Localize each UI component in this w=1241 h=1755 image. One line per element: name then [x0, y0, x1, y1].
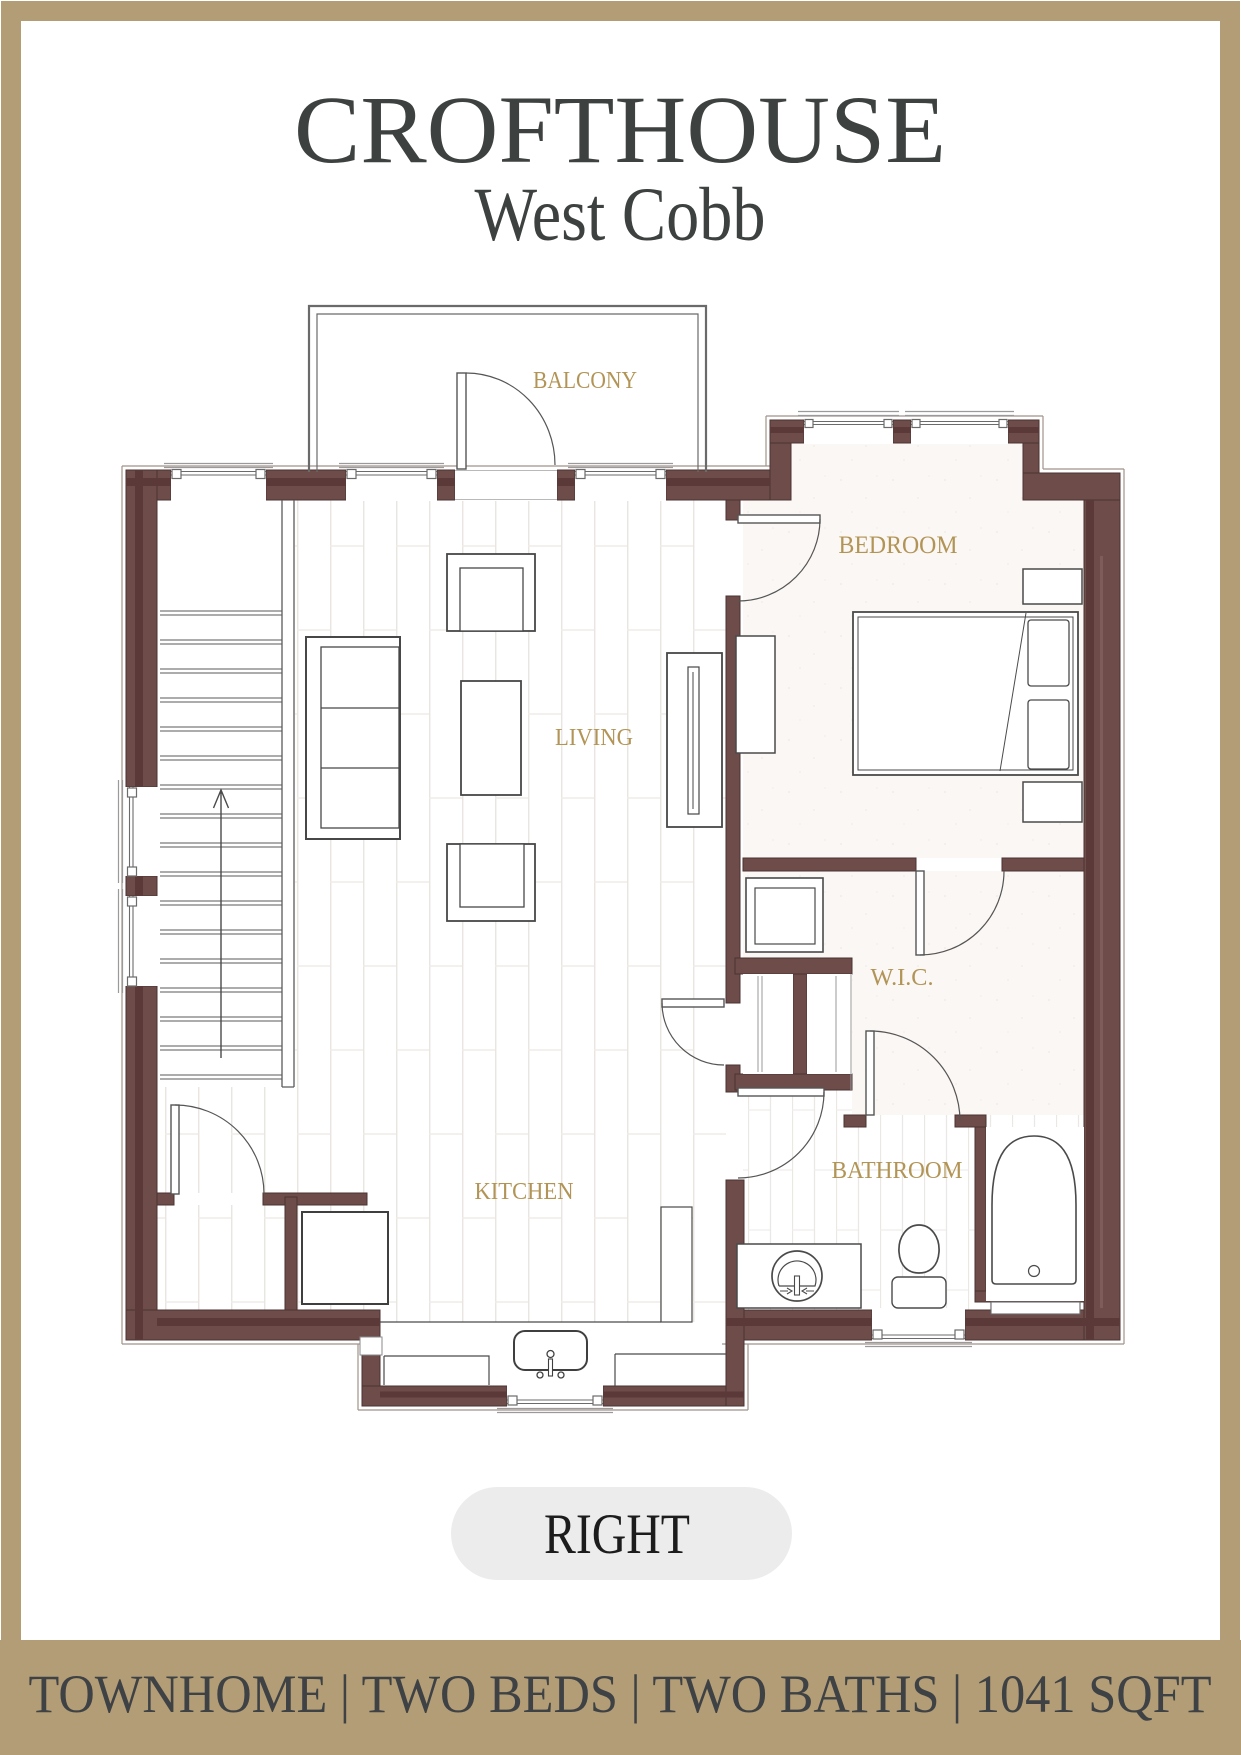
svg-text:LIVING: LIVING: [555, 725, 633, 751]
svg-text:W.I.C.: W.I.C.: [871, 965, 934, 991]
svg-text:CROFTHOUSE: CROFTHOUSE: [294, 76, 946, 183]
svg-text:KITCHEN: KITCHEN: [475, 1179, 574, 1205]
svg-text:BALCONY: BALCONY: [533, 368, 637, 394]
svg-text:BATHROOM: BATHROOM: [832, 1158, 963, 1184]
svg-text:RIGHT: RIGHT: [544, 1503, 690, 1566]
svg-text:BEDROOM: BEDROOM: [839, 532, 958, 559]
svg-text:TOWNHOME | TWO BEDS | TWO BATH: TOWNHOME | TWO BEDS | TWO BATHS | 1041 S…: [29, 1664, 1212, 1724]
svg-text:West Cobb: West Cobb: [475, 173, 766, 257]
